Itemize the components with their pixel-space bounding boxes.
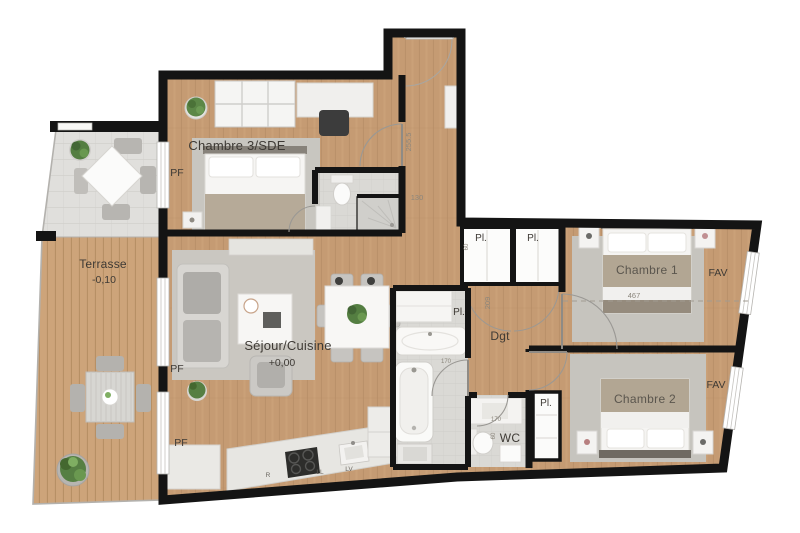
nightstand-item [190, 218, 195, 223]
dim-wc-door: 60 [491, 432, 497, 439]
table-plant [105, 392, 111, 398]
terrace-chair [136, 384, 151, 412]
toilet [473, 432, 493, 454]
label-fav-chambre2: FAV [706, 379, 725, 391]
nightstand-item [586, 233, 592, 239]
label-terrasse: Terrasse [79, 257, 127, 271]
plant-leaf [358, 313, 367, 322]
plant-leaf [74, 469, 86, 481]
sofa-cushion [183, 272, 221, 314]
plant-leaf [68, 457, 78, 467]
bed1-sheet [603, 287, 691, 300]
label-closet-hall-left: Pl. [475, 233, 487, 244]
toilet-tank [331, 175, 353, 183]
plant-leaf [348, 306, 357, 315]
chair-pad [335, 277, 343, 285]
window-pf-kitchen [157, 392, 169, 474]
nightstand-item [700, 439, 706, 445]
label-dgt: Dgt [490, 329, 510, 343]
pillow [608, 233, 646, 252]
label-dishwasher: LV [345, 466, 353, 473]
dim-wc-basin: 170 [491, 417, 502, 423]
basin-counter [396, 327, 466, 355]
label-fridge: R [266, 472, 271, 479]
label-chambre2: Chambre 2 [614, 392, 676, 406]
label-washing-machine: LL [316, 469, 324, 476]
balcony-chair [140, 166, 156, 194]
balcony-window [58, 123, 92, 130]
terrace-chair [70, 384, 85, 412]
terrace-plant [57, 454, 89, 486]
label-pf-chambre3: PF [170, 167, 183, 179]
wc-unit [500, 445, 521, 462]
label-wc: WC [500, 431, 521, 445]
label-closet-chambre2: Pl. [540, 398, 552, 409]
floorplan-page: Chambre 3/SDE PF Terrasse -0,10 Séjour/C… [0, 0, 800, 533]
plant [187, 98, 206, 117]
dim-chambre1-width: 467 [628, 291, 641, 300]
label-chambre3: Chambre 3/SDE [188, 138, 285, 153]
window-pf-chambre3 [157, 142, 169, 208]
plant-leaf [72, 142, 81, 151]
cooktop [285, 447, 320, 478]
label-terrasse-level: -0,10 [92, 274, 116, 286]
pillow [648, 233, 686, 252]
plant-leaf [196, 106, 204, 114]
desk-chair [319, 110, 349, 136]
terrace [33, 121, 163, 504]
pillow [647, 429, 684, 448]
shelf [316, 206, 331, 232]
faucet [351, 441, 355, 445]
pillow [209, 157, 253, 177]
floorplan-canvas: Chambre 3/SDE PF Terrasse -0,10 Séjour/C… [0, 0, 800, 533]
shower-tray-inner [403, 447, 427, 461]
dim-bathroom-width: 170 [441, 359, 452, 365]
chair-pad [367, 277, 375, 285]
tub-faucet [412, 368, 417, 373]
label-pf-sejour: PF [170, 363, 183, 375]
pillow [607, 429, 644, 448]
sofa-cushion [183, 320, 221, 362]
label-chambre1: Chambre 1 [616, 263, 678, 277]
dim-entry-length: 255.5 [404, 133, 413, 152]
sideboard [229, 239, 313, 255]
plate [244, 299, 258, 313]
tub-drain [412, 426, 416, 430]
bathtub-inner [400, 368, 428, 434]
bed2-headboard [599, 450, 691, 458]
label-sejour-level: +0,00 [269, 357, 296, 369]
label-closet-hall-right: Pl. [527, 233, 539, 244]
label-closet-bathroom: Pl. [453, 307, 465, 318]
bed1-footband [603, 300, 691, 313]
terrace-chair [96, 356, 124, 371]
window-pf-sejour [157, 278, 169, 366]
balcony-chair [102, 204, 130, 220]
shower-drain [390, 223, 394, 227]
nightstand-item [584, 439, 590, 445]
label-sejour: Séjour/Cuisine [244, 338, 331, 353]
faucet [428, 332, 432, 336]
toilet [334, 183, 351, 205]
plant-leaf [188, 100, 196, 108]
plant-leaf [80, 149, 89, 158]
label-fav-chambre1: FAV [708, 267, 727, 279]
dim-hall-closet: 60 [464, 243, 470, 250]
label-pf-kitchen: PF [174, 437, 187, 449]
pillow [256, 157, 300, 177]
terrace-chair [96, 424, 124, 439]
terrace-wall-stub [36, 231, 56, 241]
dim-dgt-length: 209 [483, 297, 492, 310]
bed2-sheet [601, 412, 689, 428]
plant-leaf [189, 382, 197, 390]
kitchen-island [167, 445, 220, 489]
nightstand-item [702, 233, 708, 239]
tray [263, 312, 281, 328]
dim-entry-width: 130 [411, 193, 424, 202]
